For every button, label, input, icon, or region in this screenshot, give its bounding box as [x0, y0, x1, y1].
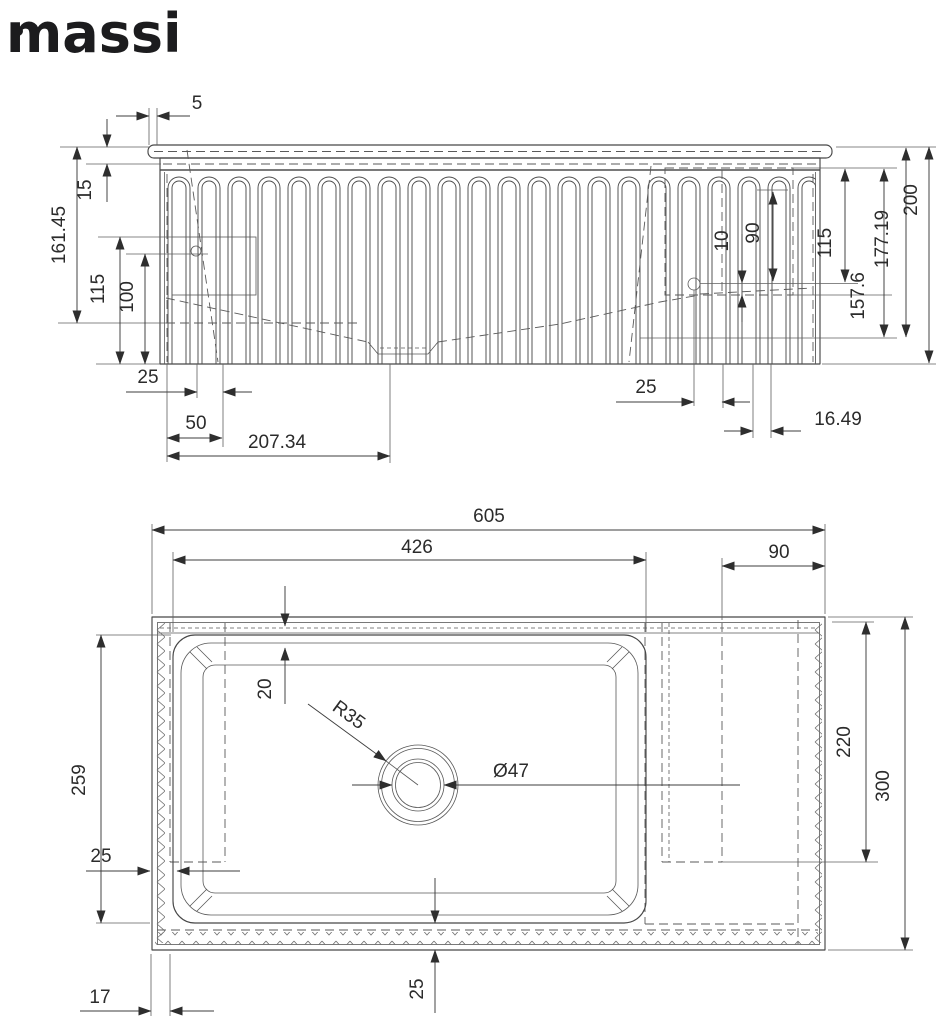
dim-plan-left-25: 25 [90, 846, 111, 867]
dim-front-bottom-50: 50 [185, 413, 206, 434]
dim-plan-right-300: 300 [873, 770, 894, 802]
plan-outline [152, 617, 825, 950]
dim-plan-bottom-17: 17 [89, 987, 110, 1008]
dim-front-right-200: 200 [901, 184, 922, 216]
dim-front-right-17719: 177.19 [872, 210, 893, 268]
dim-plan-right-220: 220 [834, 726, 855, 758]
fluted-apron-texture [164, 172, 816, 364]
dim-front-left-115: 115 [88, 274, 109, 304]
dim-front-bottom-left-25: 25 [137, 367, 158, 388]
dim-front-right-1576: 157.6 [848, 272, 869, 320]
plan-right-texture [810, 623, 822, 943]
dim-front-bottom-1649: 16.49 [814, 409, 862, 430]
brand-logo: massi [6, 2, 182, 65]
dim-front-bottom-right-25: 25 [635, 377, 656, 398]
brand-logo-text: massi [6, 2, 182, 65]
dim-front-bottom-20734: 207.34 [248, 432, 307, 453]
brand-logo-dot [13, 26, 23, 36]
dim-front-right-90: 90 [743, 222, 764, 243]
dim-front-left-100: 100 [117, 281, 138, 313]
front-sink-outline [148, 145, 832, 364]
dim-plan-bottom-25: 25 [407, 978, 428, 999]
technical-drawing: massi [0, 0, 941, 1020]
dim-front-right-115: 115 [815, 228, 836, 258]
plan-bottom-texture [155, 932, 818, 945]
dim-front-rim-height: 15 [75, 179, 96, 200]
dim-plan-left-259: 259 [69, 764, 90, 796]
dim-plan-drain-diameter: Ø47 [493, 761, 529, 782]
dim-plan-drainer-width: 90 [768, 542, 789, 563]
dim-front-right-10: 10 [712, 230, 733, 251]
dim-plan-basin-width: 426 [401, 537, 433, 558]
front-elevation-view: 5 15 161.45 115 100 25 50 207.34 25 16.4… [49, 93, 936, 463]
dim-front-lip: 5 [192, 93, 203, 114]
plan-left-texture [153, 623, 165, 943]
dim-front-left-height: 161.45 [49, 206, 70, 264]
dim-plan-rim-20: 20 [255, 678, 276, 699]
plan-hidden-lines [170, 620, 798, 944]
plan-view: 605 426 90 259 25 220 300 20 R35 Ø47 17 … [69, 506, 913, 1016]
dim-plan-overall-width: 605 [473, 506, 505, 527]
dim-plan-radius-r35: R35 [328, 697, 369, 734]
